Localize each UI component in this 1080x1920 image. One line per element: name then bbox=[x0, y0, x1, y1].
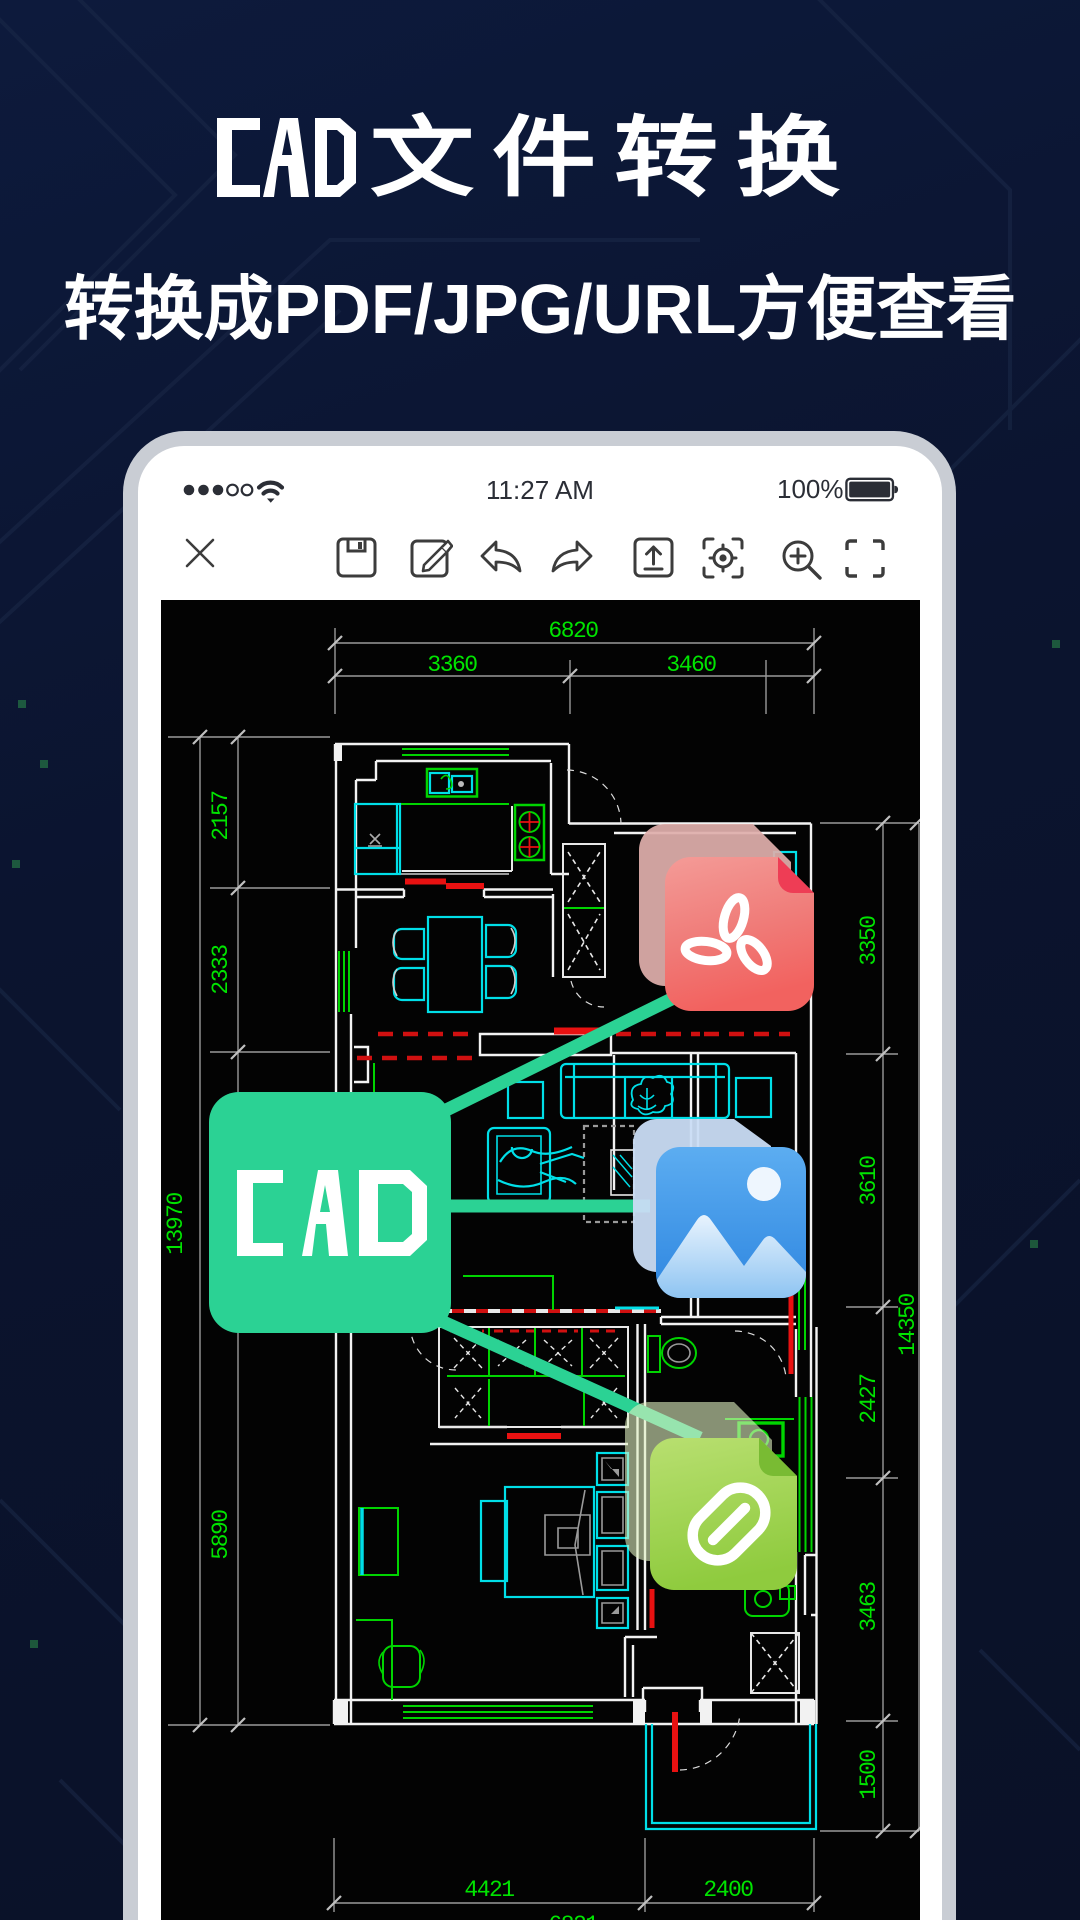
svg-text:3350: 3350 bbox=[856, 916, 882, 966]
svg-text:3463: 3463 bbox=[856, 1582, 882, 1632]
svg-text:4421: 4421 bbox=[464, 1877, 514, 1903]
svg-text:6821: 6821 bbox=[548, 1912, 598, 1920]
svg-text:文件转换: 文件转换 bbox=[370, 110, 858, 207]
svg-text:2333: 2333 bbox=[208, 945, 234, 995]
svg-text:3360: 3360 bbox=[427, 652, 477, 678]
svg-text:2427: 2427 bbox=[856, 1374, 882, 1423]
svg-text:2400: 2400 bbox=[703, 1877, 753, 1903]
svg-text:2157: 2157 bbox=[208, 791, 234, 840]
svg-text:6820: 6820 bbox=[548, 618, 598, 644]
svg-text:13970: 13970 bbox=[163, 1193, 189, 1255]
svg-text:3460: 3460 bbox=[666, 652, 716, 678]
svg-text:1500: 1500 bbox=[856, 1750, 882, 1800]
svg-text:5890: 5890 bbox=[208, 1510, 234, 1560]
svg-text:14350: 14350 bbox=[895, 1294, 920, 1356]
svg-text:3610: 3610 bbox=[856, 1156, 882, 1206]
